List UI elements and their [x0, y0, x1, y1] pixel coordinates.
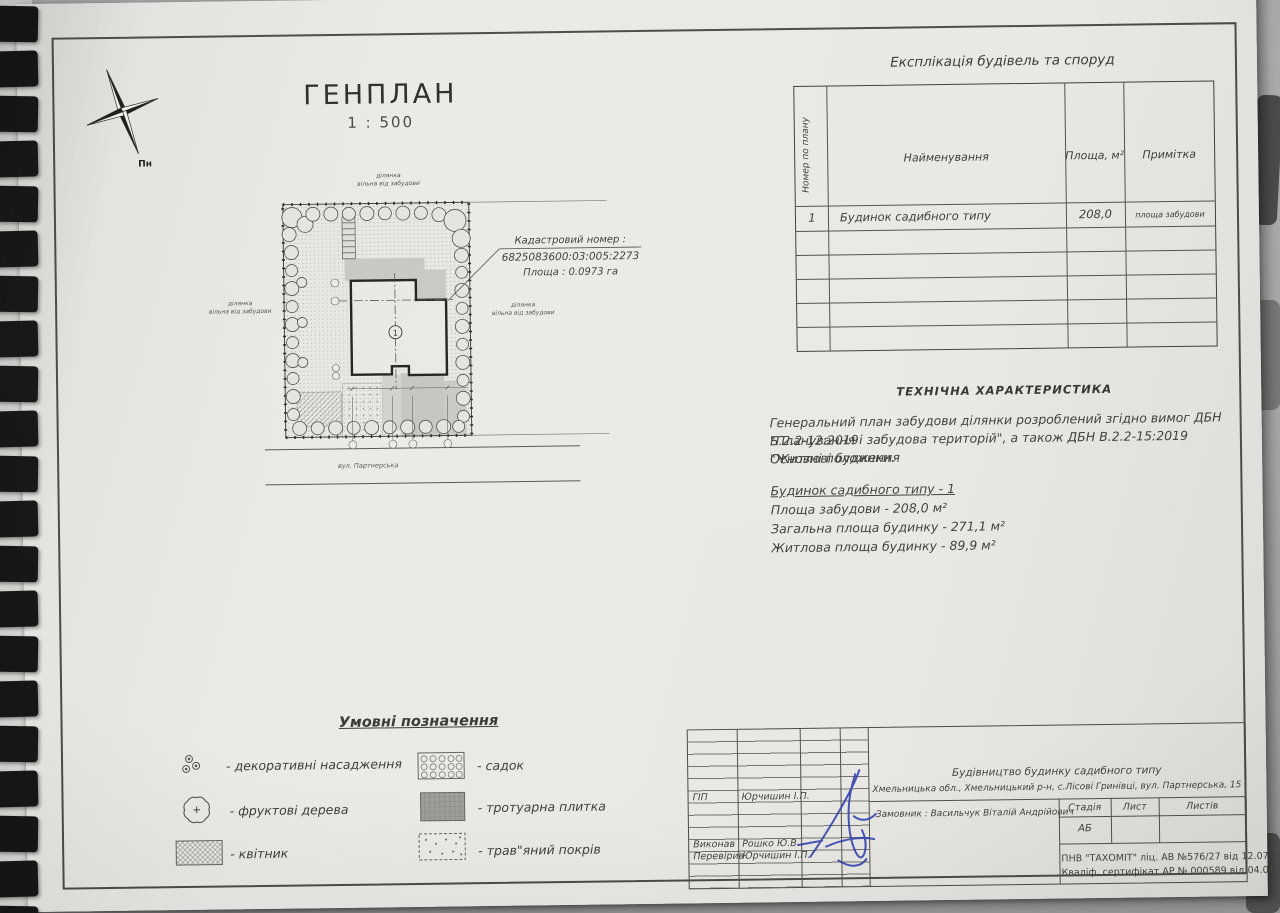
north-arrow-icon: Пн: [80, 61, 231, 178]
stamp-stage-value: АБ: [1059, 823, 1111, 835]
stamp-sheet-header: Лист: [1111, 801, 1159, 813]
binding-tab: [0, 366, 38, 403]
binding-tab: [0, 636, 38, 673]
binding-tab: [0, 546, 38, 583]
binding-tab: [0, 500, 38, 537]
binding-tab: [0, 816, 38, 853]
area-label-right2: вільна від забудови: [492, 309, 555, 317]
binding-tab: [0, 140, 38, 177]
page-title: ГЕНПЛАН: [280, 78, 480, 112]
binding-tab: [0, 276, 38, 313]
cadastral-callout: Кадастровий номер : 6825083600:03:005:22…: [447, 234, 642, 301]
stamp-sheets-header: Листів: [1159, 800, 1246, 812]
spiral-binding: [0, 0, 60, 913]
binding-tab: [0, 770, 38, 807]
fruit-tree-icon: [174, 788, 219, 833]
row-note: площа забудови: [1125, 209, 1215, 219]
paving-icon: [419, 791, 465, 822]
binding-tab: [0, 456, 38, 493]
site-plan: вул. Партнерська: [176, 158, 660, 504]
row-number: 1: [796, 211, 828, 225]
binding-tab: [0, 6, 38, 43]
building-number-bubble: 1: [389, 326, 402, 339]
legend-label-grass: - трав"яний покрів: [478, 842, 601, 859]
binding-tab: [0, 410, 38, 447]
col-header-number: Номер по плану: [800, 101, 821, 193]
binding-tab: [0, 50, 38, 87]
legend-label-fruit-trees: - фруктові дерева: [230, 802, 349, 819]
title-block: ГІП Юрчишин І.П. Виконав Рошко Ю.В. Пере…: [687, 722, 1248, 889]
cadastral-area: Площа : 0.0973 га: [523, 266, 618, 278]
legend-label-decorative: - декоративні насадження: [226, 756, 402, 773]
area-label-left2: вільна від забудови: [209, 308, 272, 316]
stamp-name-author: Рошко Ю.В.: [742, 838, 800, 850]
grass-cover-icon: [418, 832, 466, 861]
col-header-area: Площа, м²: [1065, 149, 1124, 163]
stamp-project: Будівництво будинку садибного типу: [868, 763, 1245, 780]
orchard-icon: [417, 751, 465, 780]
photo-of-drawing: Пн ГЕНПЛАН 1 : 500 вул. Партнерсь: [0, 0, 1280, 913]
flowerbed-icon: [175, 840, 223, 867]
stamp-license-line1: ПНВ "ТАХОМІТ" ліц. АВ №576/27 від 12.07.…: [1061, 851, 1244, 864]
legend-label-flowerbed: - квітник: [230, 846, 288, 862]
cadastral-title: Кадастровий номер :: [514, 234, 626, 246]
explication-table: Номер по плану Найменування Площа, м² Пр…: [793, 80, 1217, 351]
area-label-right: ділянка: [510, 301, 536, 308]
col-header-name: Найменування: [827, 149, 1065, 165]
drawing-scale: 1 : 500: [281, 112, 481, 133]
binding-tab: [0, 590, 38, 627]
legend-title: Умовні позначення: [318, 713, 518, 732]
area-label-left: ділянка: [227, 300, 253, 307]
stamp-license-line2: Кваліф. сертифікат АР № 000589 від 04.06…: [1062, 865, 1245, 878]
area-label-top: ділянка: [375, 172, 401, 179]
building-number: 1: [393, 329, 398, 338]
legend-label-paving: - тротуарна плитка: [478, 799, 606, 816]
binding-tab: [0, 906, 38, 913]
stamp-stage-header: Стадія: [1059, 802, 1111, 814]
binding-tab: [0, 320, 38, 357]
stamp-role-checker: Перевірив: [693, 851, 744, 863]
signature-ink: [795, 755, 917, 885]
legend-label-orchard: - садок: [477, 758, 524, 774]
binding-tab: [0, 726, 38, 763]
street: вул. Партнерська: [265, 446, 580, 485]
drawing-sheet: Пн ГЕНПЛАН 1 : 500 вул. Партнерсь: [16, 0, 1268, 912]
binding-tab: [0, 230, 38, 267]
stamp-address: Хмельницька обл., Хмельницький р-н, с.Лі…: [868, 780, 1245, 795]
area-label-top2: вільна від забудови: [357, 180, 420, 188]
binding-tab: [0, 186, 38, 223]
stamp-role-author: Виконав: [693, 839, 735, 851]
row-area: 208,0: [1066, 207, 1125, 222]
binding-tab: [0, 680, 38, 717]
binding-tab: [0, 860, 38, 897]
compass-north-label: Пн: [138, 159, 152, 169]
binding-tab: [0, 96, 38, 133]
cadastral-number: 6825083600:03:005:2273: [502, 250, 640, 264]
stairs: [342, 217, 356, 259]
stamp-role-gip: ГІП: [692, 792, 707, 803]
street-label: вул. Партнерська: [338, 461, 399, 470]
row-name: Будинок садибного типу: [840, 208, 1060, 225]
decorative-plantings-icon: [179, 752, 209, 778]
col-header-note: Примітка: [1124, 147, 1214, 161]
